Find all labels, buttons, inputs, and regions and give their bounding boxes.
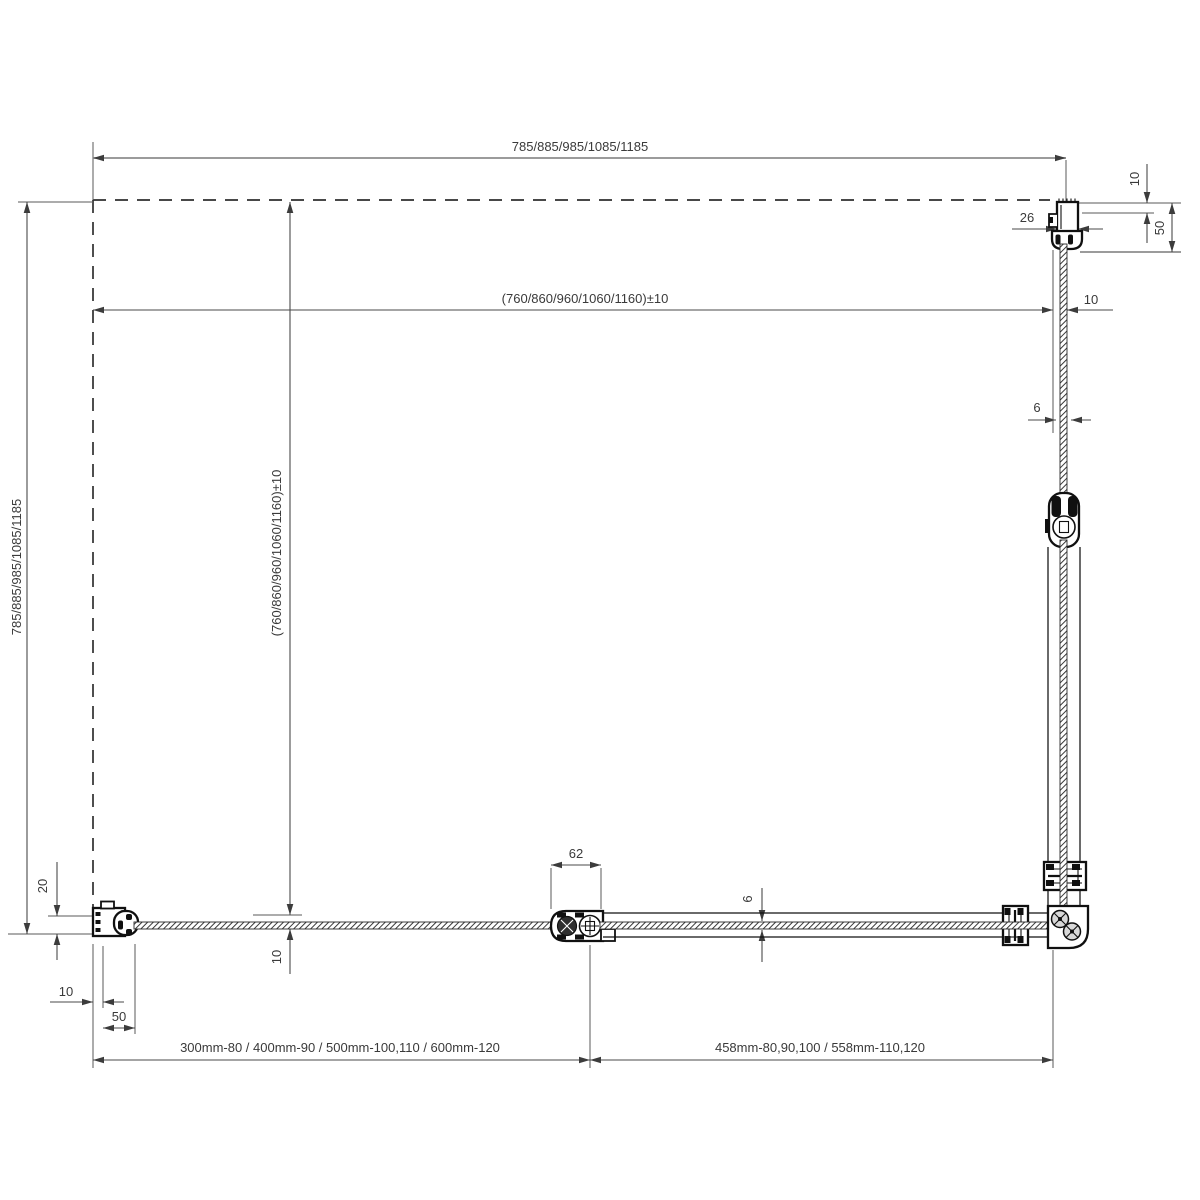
wall-profile-left bbox=[93, 902, 138, 937]
dim-profile-clearance-label: 10 bbox=[1127, 172, 1142, 186]
dim-profile-width-label: 26 bbox=[1020, 210, 1034, 225]
dim-door-sizes-label: 458mm-80,90,100 / 558mm-110,120 bbox=[715, 1040, 925, 1055]
dim-offset-bottom-label: 10 bbox=[269, 950, 284, 964]
dim-inner-width-label: (760/860/960/1060/1160)±10 bbox=[502, 291, 669, 306]
hinge-right bbox=[1045, 493, 1079, 547]
dim-inner-height: (760/860/960/1060/1160)±10 10 bbox=[253, 202, 302, 974]
dim-wall-profile-left: 20 10 50 bbox=[35, 862, 135, 1068]
side-panel-right bbox=[1044, 244, 1086, 918]
fixed-glass-bottom bbox=[134, 922, 553, 929]
door-glass-right bbox=[1060, 540, 1067, 918]
technical-drawing-canvas: 785/885/985/1085/1185 (760/860/960/1060/… bbox=[0, 0, 1200, 1200]
wall-lines bbox=[93, 200, 1050, 915]
dim-profile-left-clearance-label: 10 bbox=[59, 984, 73, 999]
dim-wall-profile-top: 10 50 26 bbox=[1012, 164, 1181, 252]
dim-bottom-sizes: 300mm-80 / 400mm-90 / 500mm-100,110 / 60… bbox=[93, 945, 1053, 1068]
dim-inner-width: (760/860/960/1060/1160)±10 10 bbox=[93, 291, 1113, 313]
dim-hinge-width: 62 bbox=[551, 846, 601, 909]
dim-fixed-panel-sizes-label: 300mm-80 / 400mm-90 / 500mm-100,110 / 60… bbox=[180, 1040, 500, 1055]
dim-overall-width-label: 785/885/985/1085/1185 bbox=[512, 139, 648, 154]
bottom-panel bbox=[134, 906, 1048, 945]
fixed-glass-right bbox=[1060, 244, 1067, 502]
dim-offset-right-label: 10 bbox=[1084, 292, 1098, 307]
dim-profile-depth-label: 50 bbox=[1152, 221, 1167, 235]
dim-glass-thickness-side-label: 6 bbox=[1033, 400, 1040, 415]
dim-overall-height-label: 785/885/985/1085/1185 bbox=[9, 499, 24, 635]
technical-drawing-page: 785/885/985/1085/1185 (760/860/960/1060/… bbox=[0, 0, 1200, 1200]
dim-overall-width: 785/885/985/1085/1185 bbox=[93, 139, 1066, 203]
dim-inner-height-label: (760/860/960/1060/1160)±10 bbox=[269, 470, 284, 637]
dim-profile-left-adjust-label: 50 bbox=[112, 1009, 126, 1024]
dim-glass-thickness-side: 6 bbox=[1028, 400, 1091, 423]
door-glass-bottom bbox=[600, 922, 1048, 929]
dim-hinge-width-label: 62 bbox=[569, 846, 583, 861]
corner-connector bbox=[1048, 906, 1088, 948]
dim-profile-left-depth-label: 20 bbox=[35, 879, 50, 893]
dim-overall-height: 785/885/985/1085/1185 bbox=[8, 202, 93, 934]
dim-glass-thickness-door-label: 6 bbox=[740, 895, 755, 902]
